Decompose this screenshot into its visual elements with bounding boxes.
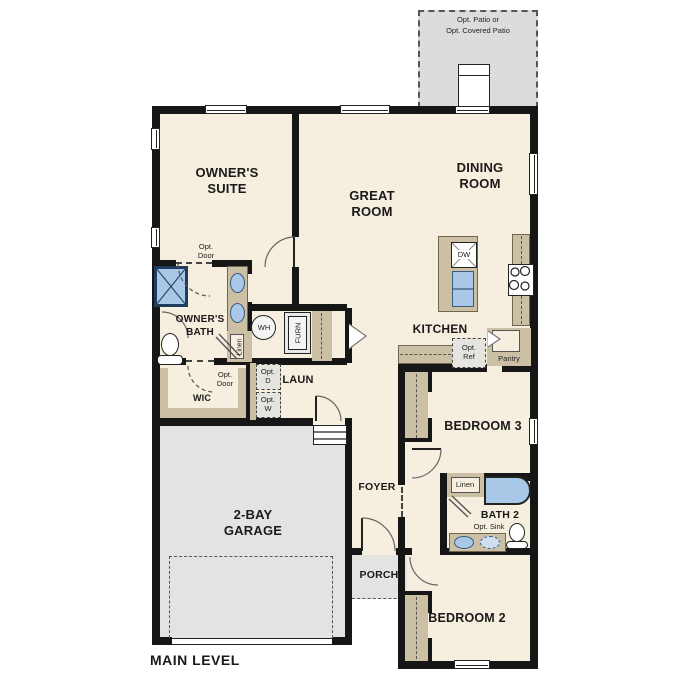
- bathtub: [484, 476, 531, 505]
- shower: [154, 266, 188, 307]
- room-label-bedroom3: BEDROOM 3: [444, 419, 522, 433]
- window: [529, 153, 538, 195]
- room-label-dining-room: DINING: [457, 160, 504, 175]
- closet-rod-line: [416, 597, 417, 659]
- room-label-great-room: GREAT: [349, 188, 395, 203]
- toilet: [157, 355, 183, 365]
- optional-sink: [480, 536, 500, 549]
- patio-label: Opt. Patio or: [457, 15, 499, 24]
- vanity-sink: [454, 536, 474, 549]
- wall: [398, 555, 405, 661]
- pantry-interior: [492, 330, 520, 352]
- optional-door-label: Opt.: [218, 370, 232, 379]
- closet-rod-line: [321, 313, 322, 359]
- patio-fireplace: [458, 64, 490, 108]
- wall: [530, 195, 538, 418]
- optional-washer-label: Opt.: [261, 395, 275, 404]
- wic-shelving: [238, 368, 246, 418]
- optional-sink-label: Opt. Sink: [474, 522, 505, 531]
- optional-dryer-label: D: [265, 376, 270, 385]
- wall: [159, 418, 313, 426]
- wall: [292, 267, 299, 308]
- plan-title: MAIN LEVEL: [150, 652, 240, 668]
- optional-refrigerator-label: Ref: [463, 352, 475, 361]
- room-label-owners-bath: BATH: [186, 327, 214, 338]
- water-heater-label: WH: [258, 323, 271, 332]
- wall: [428, 638, 432, 661]
- vanity-sink: [230, 273, 245, 293]
- room-label-wic: WIC: [193, 393, 211, 403]
- wall: [390, 106, 455, 114]
- wall: [152, 106, 160, 128]
- window: [205, 105, 247, 114]
- window: [340, 105, 390, 114]
- room-label-laundry: LAUN: [282, 374, 313, 386]
- room-label-kitchen: KITCHEN: [413, 322, 468, 336]
- wall: [398, 661, 454, 669]
- optional-dryer-label: Opt.: [261, 367, 275, 376]
- wall: [490, 661, 538, 669]
- window: [454, 660, 490, 669]
- garage-steps: [313, 425, 347, 445]
- wall: [345, 308, 352, 363]
- garage-door-dashed-outline: [169, 556, 333, 638]
- wall: [398, 364, 405, 448]
- wall: [530, 106, 538, 153]
- room-label-owners-suite: OWNER'S: [196, 165, 259, 180]
- optional-door-label: Door: [198, 251, 214, 260]
- wall: [152, 150, 160, 227]
- wall: [152, 248, 160, 645]
- optional-door-label: Opt.: [199, 242, 213, 251]
- room-label-owners-suite: SUITE: [207, 181, 246, 196]
- optional-washer-label: W: [264, 404, 271, 413]
- counter-centerline: [400, 354, 451, 355]
- kitchen-sink: [452, 271, 474, 307]
- wall: [152, 637, 172, 645]
- room-label-owners-bath: OWNER'S: [176, 314, 225, 325]
- room-label-bedroom2: BEDROOM 2: [428, 611, 506, 625]
- foyer-hall-opening: [401, 487, 403, 517]
- optional-door-opening: [186, 360, 214, 362]
- wall: [345, 418, 352, 645]
- closet-rod-line: [416, 374, 417, 438]
- wall: [428, 372, 432, 392]
- wall: [245, 304, 347, 311]
- window: [529, 418, 538, 445]
- wall: [398, 448, 405, 485]
- toilet: [506, 541, 528, 549]
- wall: [352, 548, 362, 555]
- toilet: [509, 523, 525, 542]
- optional-refrigerator-label: Opt.: [462, 343, 476, 352]
- wic-shelving: [160, 408, 246, 418]
- garage-door: [172, 638, 332, 645]
- wall: [530, 445, 538, 668]
- patio-slider-door: [455, 106, 490, 114]
- window: [151, 128, 160, 150]
- optional-door-opening: [176, 262, 212, 264]
- wall: [332, 637, 352, 645]
- room-label-great-room: ROOM: [351, 204, 392, 219]
- dishwasher-label: DW: [458, 250, 471, 259]
- wall: [405, 438, 432, 442]
- wall: [292, 112, 299, 237]
- wall: [396, 548, 407, 555]
- optional-door-label: Door: [217, 379, 233, 388]
- stove-cooktop: [508, 264, 534, 296]
- room-label-porch: PORCH: [360, 569, 399, 581]
- toilet: [161, 333, 179, 356]
- pantry-label: Pantry: [498, 354, 520, 363]
- coat-closet: [312, 311, 332, 361]
- floor-plan: Opt. Patio or Opt. Covered Patio OWNER'S…: [0, 0, 687, 687]
- vanity-sink: [230, 303, 245, 323]
- wall: [440, 473, 447, 553]
- linen-label: Linen: [237, 338, 244, 355]
- room-label-bath2: BATH 2: [481, 509, 519, 521]
- patio-label: Opt. Covered Patio: [446, 26, 510, 35]
- furnace-label: FURN: [294, 323, 303, 344]
- room-label-garage: GARAGE: [224, 523, 282, 538]
- room-label-garage: 2-BAY: [234, 507, 273, 522]
- window: [151, 227, 160, 248]
- room-label-dining-room: ROOM: [459, 176, 500, 191]
- linen-label: Linen: [456, 480, 474, 489]
- room-label-foyer: FOYER: [358, 481, 395, 493]
